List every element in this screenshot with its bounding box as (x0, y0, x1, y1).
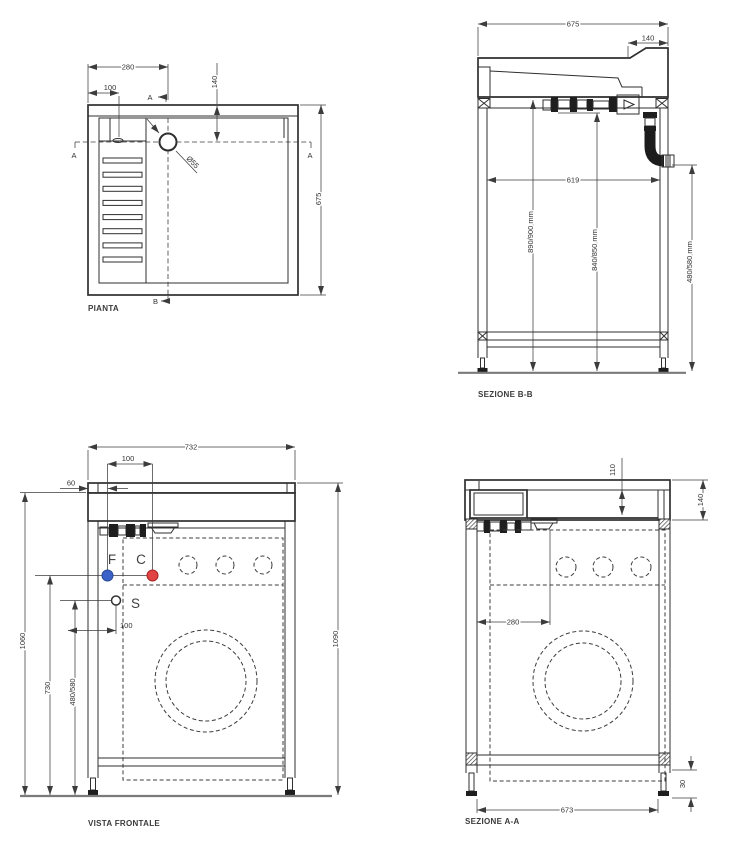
svg-text:675: 675 (314, 193, 323, 206)
svg-text:480/580: 480/580 (68, 678, 77, 705)
svg-text:60: 60 (67, 479, 75, 488)
svg-text:675: 675 (567, 20, 580, 29)
aa-dim-280: 280 (477, 530, 550, 627)
svg-text:A: A (147, 93, 152, 102)
aa-dim-30: 30 (672, 756, 697, 812)
plan-drain-hole (160, 134, 177, 151)
knob-circle (216, 556, 234, 574)
knob-circle (631, 557, 651, 577)
svg-text:1060: 1060 (18, 633, 27, 650)
front-dim-100-taps: 100 (108, 454, 153, 464)
plan-title: PIANTA (88, 304, 119, 313)
bb-adjustable-feet (478, 358, 669, 373)
drain-point (112, 596, 121, 605)
svg-text:730: 730 (43, 682, 52, 695)
front-view: F C S 732 100 (18, 443, 343, 829)
svg-text:A: A (71, 151, 76, 160)
drum-circle-inner (166, 641, 246, 721)
drawing-canvas: Ø55 280 100 140 675 A (0, 0, 742, 858)
aa-washing-machine-outline (490, 530, 665, 781)
knob-circle (556, 557, 576, 577)
front-backsplash (88, 483, 295, 493)
aa-dim-140: 140 (672, 480, 708, 520)
hot-water-label: C (136, 552, 146, 567)
section-bb-view: 675 140 619 890/900 mm 840/850 mm 480/58… (458, 20, 697, 400)
svg-text:100: 100 (104, 83, 117, 92)
bb-dim-675: 675 (478, 20, 668, 57)
bb-bottom-rails (478, 332, 668, 347)
plan-dim-675: 675 (300, 105, 326, 295)
svg-text:280: 280 (122, 63, 135, 72)
aa-bottom-rails (477, 755, 659, 765)
drum-circle-outer (533, 631, 633, 731)
cold-water-dot (102, 570, 113, 581)
aa-plumbing-assembly (477, 519, 557, 533)
section-aa-title: SEZIONE A-A (465, 817, 520, 826)
bb-dim-619: 619 (487, 176, 660, 185)
front-dim-100-drain: 100 (68, 621, 133, 631)
front-view-title: VISTA FRONTALE (88, 819, 160, 828)
front-tap-assembly (100, 523, 178, 537)
aa-legs (466, 520, 670, 773)
aa-dim-673: 673 (477, 799, 658, 815)
front-bottom-rails (98, 758, 285, 766)
front-dim-732: 732 (88, 443, 295, 481)
drum-circle-inner (545, 643, 621, 719)
plan-dim-280: 280 (88, 63, 168, 103)
svg-text:B: B (153, 297, 158, 306)
svg-text:30: 30 (678, 780, 687, 788)
svg-text:840/850 mm: 840/850 mm (590, 229, 599, 271)
front-dim-1090: 1090 (297, 483, 343, 795)
plan-view: Ø55 280 100 140 675 A (71, 63, 326, 313)
bb-legs (478, 97, 668, 358)
aa-adjustable-feet (466, 773, 669, 796)
svg-text:732: 732 (185, 443, 198, 452)
knob-circle (179, 556, 197, 574)
svg-text:100: 100 (120, 621, 133, 630)
svg-text:A: A (307, 151, 312, 160)
knob-circle (593, 557, 613, 577)
front-dim-730: 730 (43, 576, 52, 796)
svg-text:280: 280 (507, 618, 520, 627)
svg-text:480/580 mm: 480/580 mm (685, 241, 694, 283)
front-worktop (88, 493, 295, 521)
front-adjustable-feet (88, 778, 295, 795)
svg-text:110: 110 (608, 464, 617, 476)
svg-text:673: 673 (561, 806, 574, 815)
svg-text:140: 140 (210, 76, 219, 89)
svg-text:140: 140 (696, 494, 705, 507)
svg-text:100: 100 (122, 454, 135, 463)
front-dim-1060: 1060 (18, 493, 27, 795)
svg-text:890/900 mm: 890/900 mm (526, 211, 535, 253)
bb-drain-trap (543, 95, 674, 167)
knob-circle (254, 556, 272, 574)
front-legs (88, 521, 295, 778)
svg-text:619: 619 (567, 176, 580, 185)
section-bb-title: SEZIONE B-B (478, 390, 533, 399)
drain-label: S (131, 596, 140, 611)
section-aa-view: 280 110 140 (465, 458, 708, 826)
bb-dim-890-900: 890/900 mm (526, 100, 535, 371)
svg-text:140: 140 (642, 34, 655, 43)
drum-circle-outer (155, 630, 257, 732)
svg-text:1090: 1090 (331, 631, 340, 648)
cold-water-label: F (108, 552, 116, 567)
technical-drawing-sheet: Ø55 280 100 140 675 A (0, 0, 742, 858)
bb-dim-480-580: 480/580 mm (672, 165, 697, 371)
hot-water-dot (147, 570, 158, 581)
aa-top-outline (465, 480, 670, 520)
aa-leg-sections (466, 519, 670, 765)
front-dim-480-580: 480/580 (68, 601, 77, 796)
bb-worktop-profile (478, 48, 668, 97)
